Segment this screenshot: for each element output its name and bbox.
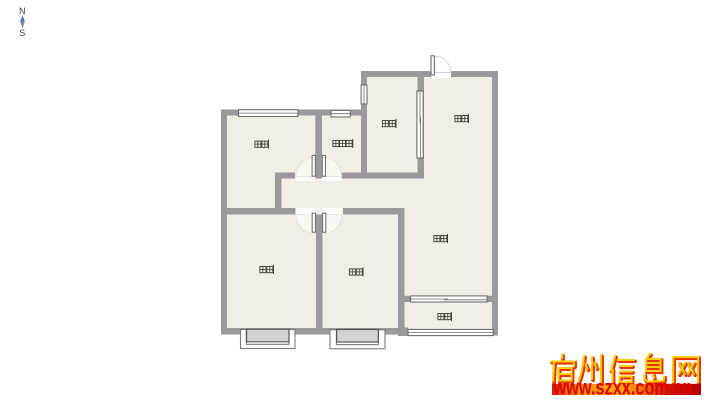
svg-text:N: N xyxy=(19,6,26,16)
svg-text:www.szxx.com.cn: www.szxx.com.cn xyxy=(553,376,693,399)
svg-text:S: S xyxy=(19,28,25,38)
